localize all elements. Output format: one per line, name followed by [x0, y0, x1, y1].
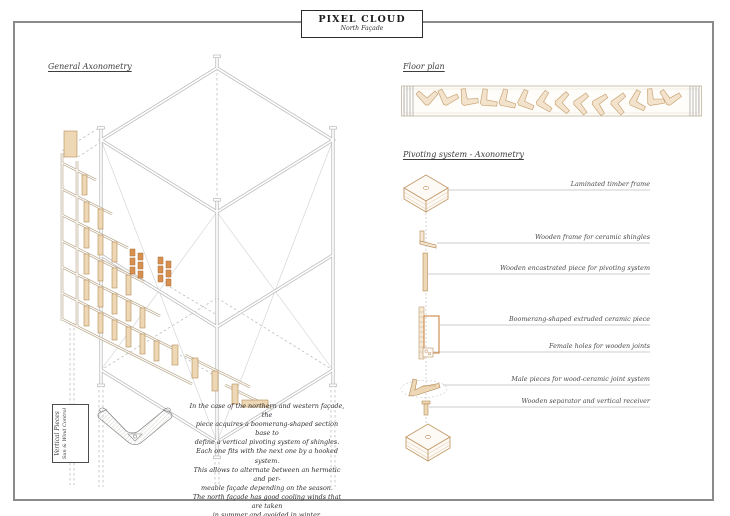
- female-holes: [423, 348, 433, 357]
- floor-plan-strip: [401, 85, 703, 118]
- desc-line: The north façade has good cooling winds …: [188, 493, 346, 511]
- desc-line: This allows to alternate between an herm…: [188, 466, 346, 484]
- desc-line: Each one fits with the next one by a hoo…: [188, 447, 346, 465]
- boomerang-section-detail: [48, 402, 178, 462]
- page-title: PIXEL CLOUD: [302, 14, 422, 25]
- facade-assembly: [62, 131, 272, 408]
- desc-line: meable façade depending on the season.: [188, 484, 346, 493]
- laminated-timber-frame-top: [404, 175, 448, 212]
- laminated-timber-frame-bottom: [406, 424, 450, 461]
- desc-line: define a vertical pivoting system of shi…: [188, 438, 346, 447]
- desc-line: In the case of the northern and western …: [188, 402, 346, 420]
- desc-line: piece acquires a boomerang-shaped sectio…: [188, 420, 346, 438]
- encastrated-piece: [423, 253, 428, 291]
- label-wooden-separator: Wooden separator and vertical receiver: [522, 397, 650, 405]
- label-ceramic-piece: Boomerang-shaped extruded ceramic piece: [509, 315, 650, 323]
- description-text: In the case of the northern and western …: [188, 402, 346, 516]
- drawing-sheet: PIXEL CLOUD North Façade General Axonome…: [0, 0, 730, 516]
- heading-pivoting-system: Pivoting system - Axonometry: [403, 150, 524, 159]
- heading-floor-plan: Floor plan: [403, 62, 445, 71]
- pivot-cluster: [130, 249, 171, 286]
- title-box: PIXEL CLOUD North Façade: [301, 10, 423, 38]
- wooden-separator: [422, 401, 430, 415]
- hook-tips: [100, 408, 171, 412]
- facade-shingles: [64, 131, 268, 407]
- wooden-frame-bracket: [420, 231, 436, 248]
- page-subtitle: North Façade: [302, 25, 422, 33]
- label-laminated-timber-frame: Laminated timber frame: [571, 180, 650, 188]
- label-encastrated-piece: Wooden encastrated piece for pivoting sy…: [500, 264, 650, 272]
- desc-line: in summer and avoided in winter.: [188, 511, 346, 516]
- male-joint-piece: [401, 379, 447, 398]
- label-female-holes: Female holes for wooden joints: [549, 342, 650, 350]
- label-male-pieces: Male pieces for wood-ceramic joint syste…: [511, 375, 650, 383]
- label-wooden-frame: Wooden frame for ceramic shingles: [535, 233, 650, 241]
